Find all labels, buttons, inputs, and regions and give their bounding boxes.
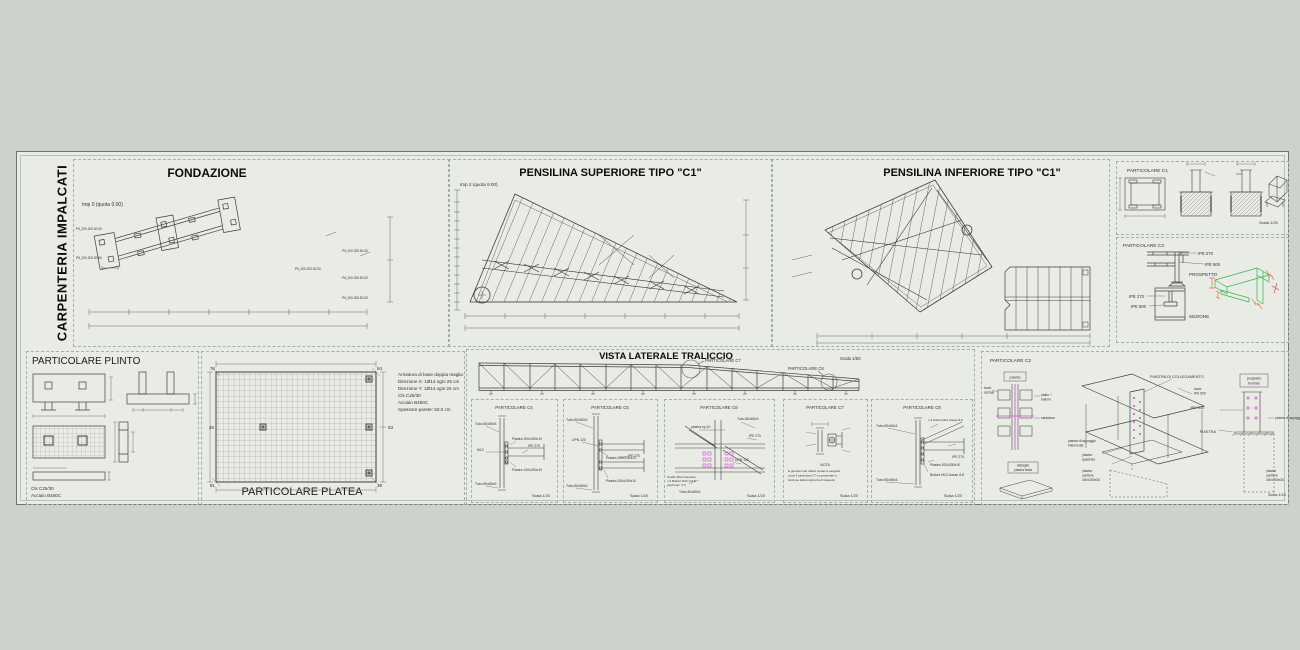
c8-label: Tubo 80x80x3 xyxy=(876,424,897,428)
particolare-c8-drawing: PARTICOLARE C8 Tubo 80x80x3 n.4 bulloni … xyxy=(872,400,972,502)
panel-particolare-c3: PARTICOLARE C3 IPE 270 IPE 500 PROSPETTO xyxy=(1116,237,1289,343)
panel-pensilina-inferiore: PENSILINA INFERIORE TIPO "C1" xyxy=(771,159,1110,347)
c7-note-line: funzione della lunghezza di trasporto xyxy=(788,478,835,482)
c2-cantiere-label: cantiere xyxy=(1266,474,1278,478)
panel-fondazione: FONDAZIONE xyxy=(73,159,450,347)
fondazione-level-label: Imp 0 (quota 0.00) xyxy=(82,202,123,208)
panel-particolare-c5: PARTICOLARE C5 Tubo 80x80x3 UPN 120 Pias… xyxy=(563,399,658,503)
particolare-c4-drawing: PARTICOLARE C4 Tubo 80x80x3 M12 Piastra … xyxy=(472,400,557,502)
particolare-c8-title: PARTICOLARE C8 xyxy=(903,405,941,410)
panel-particolare-plinto: PARTICOLARE PLINTO xyxy=(26,351,199,505)
vista-laterale-drawing: PARTICOLARE C7 PARTICOLARE C8 Scala 1/50 xyxy=(468,352,973,402)
platea-notes: Armatura di base doppia maglia Direzione… xyxy=(398,372,463,412)
particolare-c5-drawing: PARTICOLARE C5 Tubo 80x80x3 UPN 120 Pias… xyxy=(564,400,657,502)
c3-isometric-green-beams xyxy=(1215,268,1269,304)
c4-label: Tubo 80x80x3 xyxy=(475,482,496,486)
c5-label: UPN 120 xyxy=(572,438,586,442)
c8-label: IPE 270 xyxy=(952,455,964,459)
particolare-c1-title: PARTICOLARE C1 xyxy=(1127,168,1168,174)
c2-trave-acciaio-label: acciaio xyxy=(984,391,994,395)
cad-viewport: CARPENTERIA IMPALCATI FONDAZIONE xyxy=(0,0,1300,650)
c7-note-line: come il particolare C7 e posizionate in xyxy=(788,474,837,478)
c2-prospetto-bolts xyxy=(1246,396,1258,420)
platea-note-line: Direzione X: 1Ø14 ogni 25 cm xyxy=(398,379,459,384)
particolare-c1-drawing: PARTICOLARE C1 xyxy=(1117,162,1288,234)
c8-label: Piastra 200x200x10 xyxy=(930,463,960,467)
particolare-c6-scale: Scala 1/20 xyxy=(747,494,765,498)
c2-quadrata-label: piastra xyxy=(1082,453,1092,457)
c2-piatto-bulloni-label: piatto + xyxy=(1041,393,1052,397)
particolare-c4-scale: Scala 1/20 xyxy=(532,494,550,498)
c3-sezione-ipe270-label: IPE 270 xyxy=(1129,294,1145,299)
panel-particolare-c6: PARTICOLARE C6 piastra sp.10 Tubo 80x80x… xyxy=(664,399,775,503)
c2-trave-acciaio-label: trave xyxy=(984,386,991,390)
c2-appoggio-label: piastra di appoggio xyxy=(1068,439,1096,443)
particolare-c7-drawing: PARTICOLARE C7 NOTA le giunzioni dei tra… xyxy=(784,400,867,502)
panel-particolare-c4: PARTICOLARE C4 Tubo 80x80x3 M12 Piastra … xyxy=(471,399,558,503)
particolare-c2-drawing: PARTICOLARE C2 pianta trave acciaio piat… xyxy=(982,352,1288,504)
c2-prospetto-frontale-label: frontale xyxy=(1248,382,1260,386)
c2-cantiere-label: 300x300x30 xyxy=(1266,478,1284,482)
c2-pianta-axis xyxy=(996,384,1034,450)
platea-corner-bl: 81 xyxy=(210,483,216,488)
panel-particolare-c2: PARTICOLARE C2 pianta trave acciaio piat… xyxy=(981,351,1289,505)
c2-dettaglio-label: dettaglio xyxy=(1017,464,1030,468)
panel-particolare-c8: PARTICOLARE C8 Tubo 80x80x3 n.4 bulloni … xyxy=(871,399,973,503)
c2-appoggio-label: intermedia xyxy=(1068,444,1084,448)
c4-label: M12 xyxy=(477,448,484,452)
c2-saldatura-label: saldatura xyxy=(1041,416,1055,420)
c2-quadrata-label: quadrata xyxy=(1082,458,1095,462)
vista-scale: Scala 1/50 xyxy=(840,356,861,361)
particolare-c3-drawing: PARTICOLARE C3 IPE 270 IPE 500 PROSPETTO xyxy=(1117,238,1288,342)
c8-label: Tubo 80x80x3 xyxy=(876,478,897,482)
particolare-c3-title: PARTICOLARE C3 xyxy=(1123,243,1164,249)
c2-isometric-beam xyxy=(1082,374,1208,497)
c3-sezione-ipe500-label: IPE 500 xyxy=(1131,304,1147,309)
plinth-tag: Plt_200.200.50.00 xyxy=(76,256,102,260)
c2-ipe500-label: IPE 500 xyxy=(1190,406,1204,410)
c4-label: Tubo 80x80x3 xyxy=(475,422,496,426)
platea-note-line: Direzione Y: 1Ø14 ogni 25 cm xyxy=(398,386,459,391)
c3-prospetto-label: PROSPETTO xyxy=(1189,272,1218,277)
c5-label: Piastra 200x200x10 xyxy=(606,479,636,483)
platea-note-line: Cls C25/30 xyxy=(398,393,421,398)
c2-trave-ipe-label: IPE 500 xyxy=(1194,392,1206,396)
c6-note-line: (vedi part. C7) xyxy=(667,483,686,487)
c2-weld-dots xyxy=(1133,397,1141,439)
c2-piatto-bulloni-label: bulloni xyxy=(1041,398,1051,402)
c2-cantiere-label: cantiere xyxy=(1082,474,1094,478)
pensilina-superiore-drawing: Imp 2 (quota 9.00) xyxy=(449,160,772,346)
particolare-c8-scale: Scala 1/20 xyxy=(944,494,962,498)
c4-label: Piastra 120x200x10 xyxy=(512,468,542,472)
plinth-tag: Plt_200.200.50.00 xyxy=(342,276,368,280)
c5-label: Tubo 80x80x3 xyxy=(566,418,587,422)
drawing-sheet: CARPENTERIA IMPALCATI FONDAZIONE xyxy=(16,151,1289,505)
fondazione-drawing: Imp 0 (quota 0.00) Plt_200.200.50.00 Plt… xyxy=(74,160,449,346)
plinth-tag: Plt_200.200.50.00 xyxy=(342,249,368,253)
c2-trave-ipe-label: trave xyxy=(1194,387,1201,391)
plinto-acciaio-label: Acciaio B450C xyxy=(31,493,62,498)
c6-bolt-group xyxy=(703,452,733,467)
plinth-tag: Plt_200.200.50.00 xyxy=(342,296,368,300)
c2-cantiere-label: piastra xyxy=(1266,469,1276,473)
c2-prospetto-frontale-label: prospetto xyxy=(1247,377,1262,381)
particolare-c1-scale: Scala 1/20 xyxy=(1259,220,1279,225)
c7-note-line: le giunzioni dei tralicci verranno esegu… xyxy=(788,469,840,473)
c6-label: piastra sp.10 xyxy=(691,425,711,429)
panel-particolare-platea: PARTICOLARE PLATEA 76 64 45 53 81 xyxy=(201,351,465,505)
particolare-c6-title: PARTICOLARE C6 xyxy=(700,405,738,410)
c2-cantiere-label: 300x300x30 xyxy=(1082,478,1100,482)
sheet-side-label: CARPENTERIA IMPALCATI xyxy=(55,165,70,341)
plinth-tag: Plt_200.200.50.00 xyxy=(295,267,321,271)
c4-label: Piastra 200x200x10 xyxy=(512,437,542,441)
c8-label: n.4 bulloni M12 classe 8.8 xyxy=(928,418,963,422)
particolare-c7-title: PARTICOLARE C7 xyxy=(806,405,844,410)
platea-corner-tr: 64 xyxy=(377,366,383,371)
c6-label: Tubo 80x80x3 xyxy=(737,417,758,421)
particolare-c2-scale: Scala 1/10 xyxy=(1268,493,1286,497)
platea-note-line: Acciaio B450C xyxy=(398,400,429,405)
c3-ipe500-label: IPE 500 xyxy=(1205,262,1221,267)
panel-particolare-c7: PARTICOLARE C7 NOTA le giunzioni dei tra… xyxy=(783,399,868,503)
c6-label: IPE 270 xyxy=(749,434,761,438)
c3-ipe270-label: IPE 270 xyxy=(1198,251,1214,256)
platea-corner-br: 19 xyxy=(377,483,383,488)
c4-label: IPE 270 xyxy=(528,444,540,448)
c2-piastra-label: PIASTRA xyxy=(1200,430,1217,434)
c3-axis-marker xyxy=(1272,283,1279,293)
c5-label: IPE 270 xyxy=(628,454,640,458)
platea-corner-tl: 76 xyxy=(210,366,216,371)
particolare-c4-title: PARTICOLARE C4 xyxy=(495,405,533,410)
c6-label: UPN 120 xyxy=(735,458,749,462)
panel-particolare-c1: PARTICOLARE C1 xyxy=(1116,161,1289,235)
vista-callout-c7: PARTICOLARE C7 xyxy=(705,358,741,363)
c2-piastra-appoggio-label: piastra di appoggio xyxy=(1275,416,1300,420)
c7-nota-title: NOTA xyxy=(820,463,830,467)
panel-pensilina-superiore: PENSILINA SUPERIORE TIPO "C1" Imp 2 (quo… xyxy=(448,159,773,347)
platea-note-line: Armatura di base doppia maglia xyxy=(398,372,463,377)
particolare-c6-drawing: PARTICOLARE C6 piastra sp.10 Tubo 80x80x… xyxy=(665,400,774,502)
c3-sezione-label: SEZIONE xyxy=(1189,314,1209,319)
pensilina-superiore-level-label: Imp 2 (quota 9.00) xyxy=(460,182,498,187)
particolare-c2-title: PARTICOLARE C2 xyxy=(990,358,1031,364)
platea-corner-mr: 53 xyxy=(388,425,394,430)
c2-piastra-collegamento-label: PIASTRA DI COLLEGAMENTO xyxy=(1150,375,1204,379)
platea-corner-ml: 45 xyxy=(209,425,215,430)
c5-label: Tubo 80x80x3 xyxy=(566,484,587,488)
plinto-cls-label: Cls C25/30 xyxy=(31,486,54,491)
c2-dettaglio-label: piastra testa xyxy=(1014,468,1032,472)
c8-label: Bulloni M12 classe 8.8 xyxy=(930,473,964,477)
particolare-c5-title: PARTICOLARE C5 xyxy=(591,405,629,410)
particolare-platea-drawing: 76 64 45 53 81 19 Armatura di base doppi… xyxy=(202,352,464,504)
particolare-c5-scale: Scala 1/20 xyxy=(630,494,648,498)
particolare-plinto-drawing: Cls C25/30 Acciaio B450C xyxy=(27,352,198,504)
plinth-tag: Plt_200.200.50.00 xyxy=(76,227,102,231)
c2-cantiere-label: piastra xyxy=(1082,469,1092,473)
vista-callout-c8: PARTICOLARE C8 xyxy=(788,366,824,371)
platea-note-line: Spessore parete: 50.0 cm xyxy=(398,407,451,412)
c6-label: Tubo 80x80x3 xyxy=(679,490,700,494)
pensilina-inferiore-drawing xyxy=(772,160,1109,346)
particolare-c7-scale: Scala 1/20 xyxy=(840,494,858,498)
c2-pianta-label: pianta xyxy=(1010,375,1022,380)
